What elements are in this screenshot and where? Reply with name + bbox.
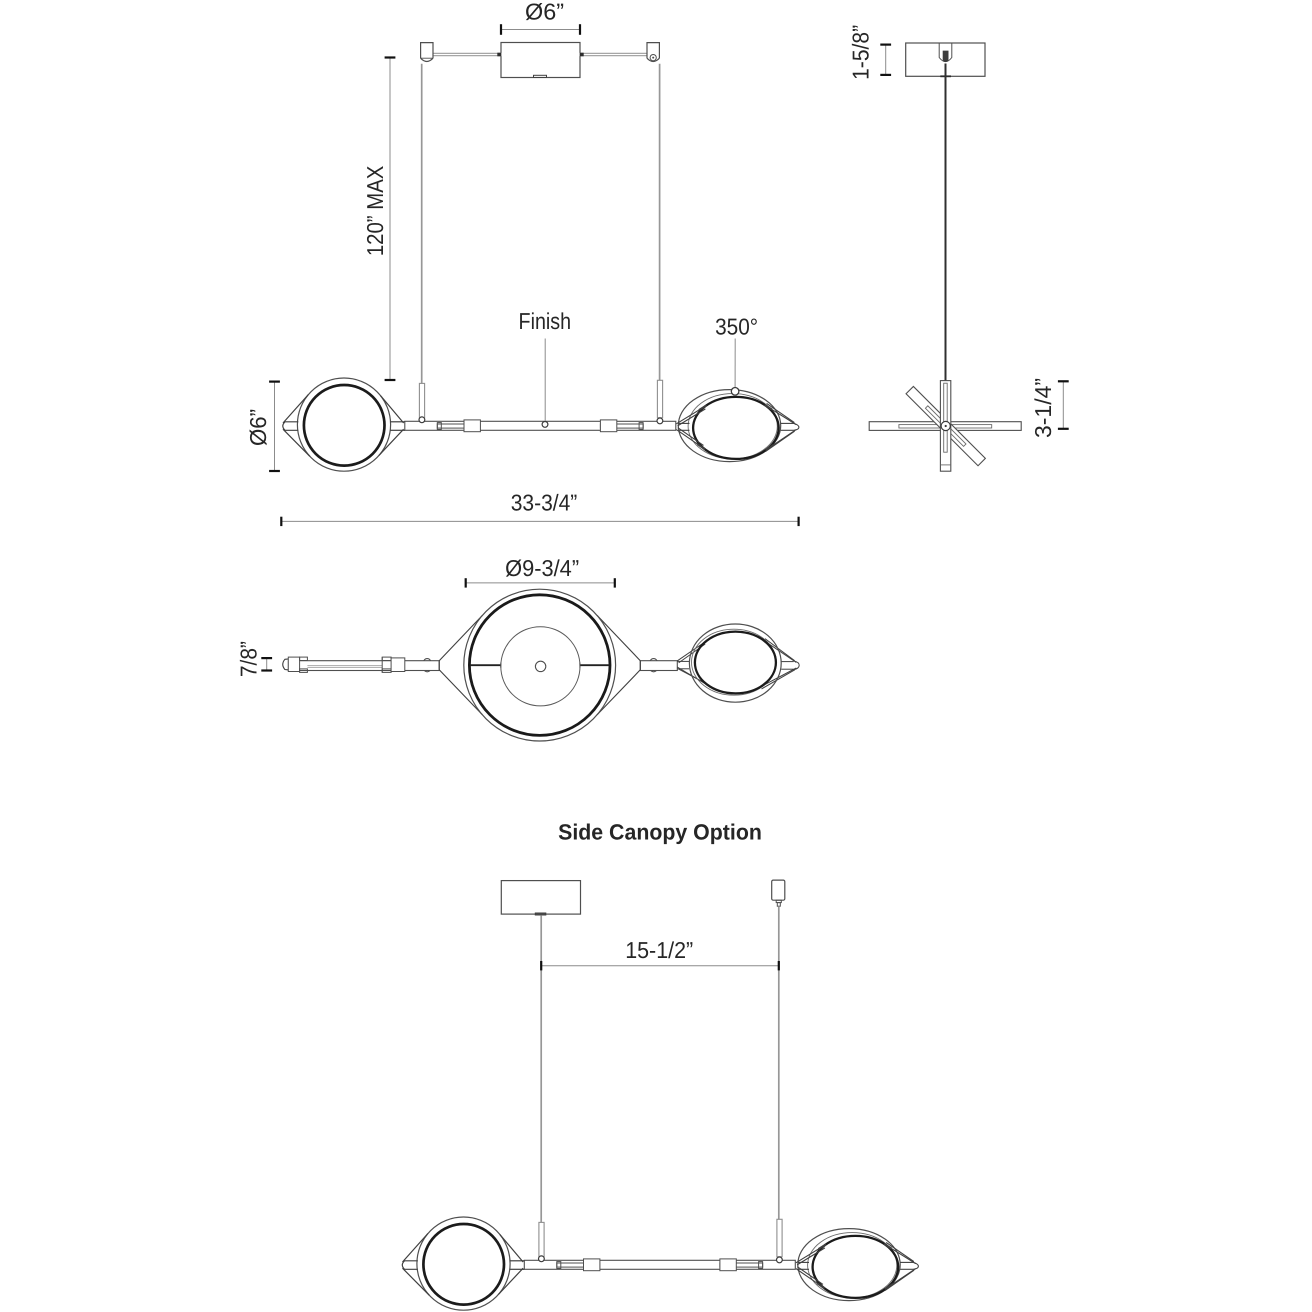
svg-text:33-3/4”: 33-3/4” [511,489,578,515]
svg-text:7/8”: 7/8” [235,641,261,677]
svg-text:120” MAX: 120” MAX [362,166,388,257]
svg-text:3-1/4”: 3-1/4” [1030,378,1056,438]
svg-text:Finish: Finish [519,308,572,334]
svg-text:Ø9-3/4”: Ø9-3/4” [505,555,579,581]
svg-text:Ø6”: Ø6” [245,409,271,446]
svg-text:15-1/2”: 15-1/2” [625,937,693,963]
svg-text:350°: 350° [715,314,758,340]
svg-text:Side Canopy Option: Side Canopy Option [558,820,762,845]
svg-text:1-5/8”: 1-5/8” [848,25,874,80]
svg-text:Ø6”: Ø6” [525,0,564,25]
